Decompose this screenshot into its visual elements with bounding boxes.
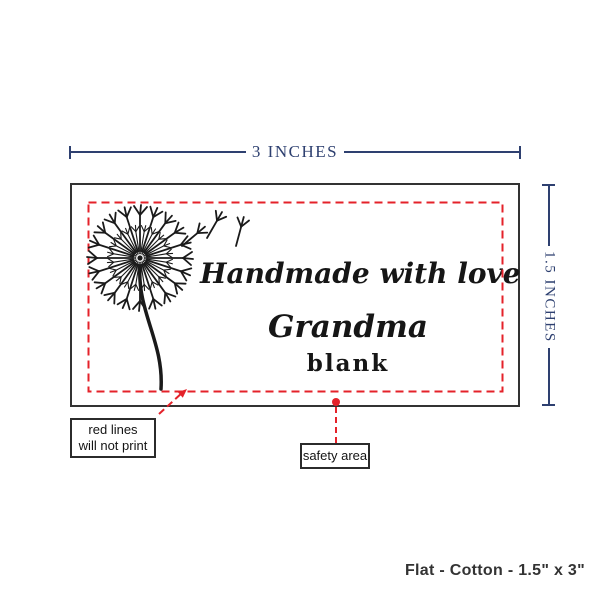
label-preview: Handmade with love by Grandma blank [70, 183, 520, 407]
width-dimension-cap-right [519, 146, 521, 159]
width-dimension-text: 3 INCHES [252, 142, 338, 162]
red-lines-callout-text-line1: red lines [88, 422, 137, 438]
design-text-line3: blank [200, 351, 496, 377]
height-dimension-cap-top [542, 184, 555, 186]
height-dimension-cap-bottom [542, 404, 555, 406]
width-dimension-cap-left [69, 146, 71, 159]
height-dimension-text: 1.5 INCHES [541, 251, 558, 343]
safety-area-callout-text: safety area [303, 448, 367, 464]
red-lines-callout-text-line2: will not print [79, 438, 148, 454]
design-text-line1: Handmade with love by [200, 257, 496, 291]
safety-area-callout: safety area [300, 443, 370, 469]
red-lines-callout: red lines will not print [70, 418, 156, 458]
width-dimension-label: 3 INCHES [246, 135, 344, 169]
design-text-line2: Grandma [200, 309, 496, 345]
height-dimension-label: 1.5 INCHES [530, 246, 568, 348]
product-info: Flat - Cotton - 1.5" x 3" [405, 562, 585, 580]
